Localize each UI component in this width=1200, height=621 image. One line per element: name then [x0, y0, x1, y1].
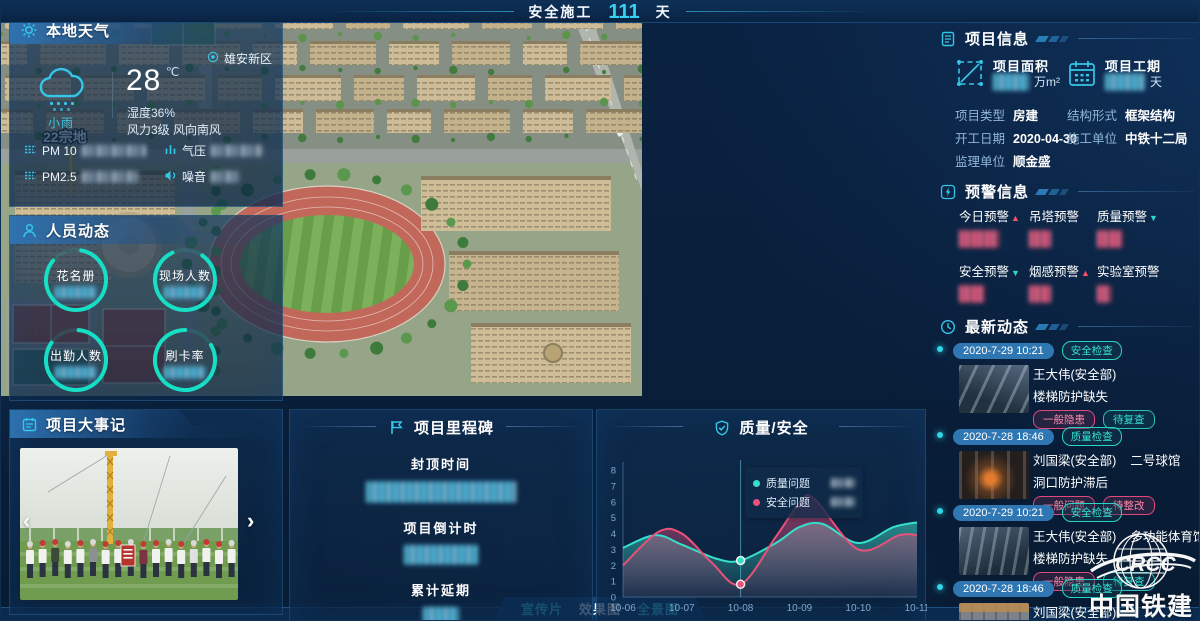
legend-dot — [753, 499, 760, 506]
news-person: 刘国梁(安全部) — [1033, 454, 1116, 468]
weather-metric: 气压 — [164, 142, 274, 159]
metric-value-blurred — [82, 145, 146, 157]
warning-value-blurred — [959, 230, 999, 248]
milestone-item: 累计延期 — [290, 580, 592, 621]
field-value: 房建 — [1013, 109, 1038, 123]
metric-label: PM 10 — [42, 144, 77, 158]
svg-text:10-06: 10-06 — [610, 603, 636, 614]
circle-value-blurred — [55, 286, 97, 299]
project-info-header: 项目信息 — [939, 28, 1195, 49]
sun-icon — [20, 21, 38, 39]
person-icon — [20, 221, 38, 239]
timeline-dot — [937, 508, 943, 514]
field-label: 开工日期 — [955, 132, 1005, 146]
news-photo — [959, 451, 1029, 499]
timeline-dot — [937, 584, 943, 590]
events-title: 项目大事记 — [46, 414, 126, 435]
news-issue-desc: 洞口防护滞后 — [1033, 472, 1200, 491]
rain-cloud-icon — [34, 66, 92, 117]
dashboard: 安全施工 111 天 本地天气 雄安新区 小雨 28 ℃ — [0, 0, 1200, 621]
alert-bolt-icon — [939, 183, 957, 201]
personnel-stat-circle: 出勤人数 — [43, 327, 109, 393]
metric-label: 噪音 — [182, 168, 206, 185]
legend-row: 质量问题 — [753, 475, 855, 491]
personnel-header: 人员动态 — [10, 216, 282, 244]
temperature-unit: ℃ — [166, 65, 179, 79]
warning-item: 质量预警▼ — [1097, 206, 1177, 248]
stat-unit: 万m² — [1034, 75, 1060, 89]
milestone-item-value-blurred — [423, 607, 459, 621]
deco-chips — [1037, 36, 1070, 42]
circle-value-blurred — [55, 366, 97, 379]
pm-icon — [24, 144, 37, 158]
svg-text:5: 5 — [611, 513, 616, 524]
area-icon — [955, 58, 985, 93]
clock-icon — [939, 318, 957, 336]
svg-text:3: 3 — [611, 545, 616, 556]
weather-metric: PM2.5 — [24, 168, 164, 185]
events-header: 项目大事记 — [10, 410, 282, 438]
project-field: 施工单位中铁十二局 — [1067, 128, 1188, 147]
svg-text:10-09: 10-09 — [787, 603, 813, 614]
svg-text:0: 0 — [611, 593, 616, 604]
field-value: 中铁十二局 — [1125, 132, 1188, 146]
crcc-name: 中国铁建 — [1081, 587, 1200, 621]
circle-value-blurred — [164, 286, 206, 299]
location-icon — [207, 51, 219, 66]
carousel-prev-button[interactable]: ‹ — [23, 510, 30, 532]
news-date-badge: 2020-7-29 10:21 — [953, 505, 1054, 521]
legend-label: 安全问题 — [766, 494, 810, 510]
personnel-stat-circle: 刷卡率 — [152, 327, 218, 393]
legend-row: 安全问题 — [753, 494, 855, 510]
timeline-dot — [937, 346, 943, 352]
warning-item: 安全预警▼ — [959, 261, 1039, 303]
field-label: 施工单位 — [1067, 132, 1117, 146]
milestone-item-label: 累计延期 — [290, 580, 592, 599]
quality-header: 质量/安全 — [597, 417, 925, 438]
temperature-value: 28 — [126, 64, 161, 97]
svg-text:6: 6 — [611, 497, 616, 508]
event-photo[interactable] — [20, 448, 238, 600]
project-field: 项目类型房建 — [955, 105, 1038, 124]
field-label: 项目类型 — [955, 109, 1005, 123]
safe-days-unit: 天 — [656, 2, 672, 22]
milestone-item-value-blurred — [404, 545, 478, 565]
svg-text:8: 8 — [611, 466, 616, 477]
metric-value-blurred — [211, 171, 241, 183]
legend-dot — [753, 480, 760, 487]
pm-icon — [24, 170, 37, 184]
crcc-logo: CRCC 中国铁建 — [1081, 531, 1200, 621]
warning-label: 安全预警▼ — [959, 261, 1039, 280]
news-category-badge: 质量检查 — [1062, 427, 1122, 446]
news-category-badge: 安全检查 — [1062, 341, 1122, 360]
deco-line — [1078, 38, 1195, 39]
weather-metrics: PM 10气压PM2.5噪音 — [24, 142, 274, 185]
weather-metric: 噪音 — [164, 168, 274, 185]
warning-value-blurred — [1097, 230, 1123, 248]
weather-metric: PM 10 — [24, 142, 164, 159]
field-label: 监理单位 — [955, 155, 1005, 169]
warnings-header: 预警信息 — [939, 181, 1195, 202]
news-person: 王大伟(安全部) — [1033, 368, 1116, 382]
warning-label: 今日预警▲ — [959, 206, 1039, 225]
metric-value-blurred — [82, 171, 138, 183]
svg-text:7: 7 — [611, 481, 616, 492]
circle-label: 出勤人数 — [43, 347, 109, 364]
news-item[interactable]: 2020-7-29 10:21安全检查王大伟(安全部)楼梯防护缺失一般隐患待复查 — [929, 341, 1200, 423]
news-photo — [959, 527, 1029, 575]
circle-label: 刷卡率 — [152, 347, 218, 364]
news-location: 二号球馆 — [1130, 454, 1180, 468]
circle-label: 现场人数 — [152, 267, 218, 284]
circle-value-blurred — [164, 366, 206, 379]
svg-text:10-08: 10-08 — [728, 603, 754, 614]
noise-icon — [164, 170, 177, 184]
svg-text:1: 1 — [611, 577, 616, 588]
personnel-stat-circle: 现场人数 — [152, 247, 218, 313]
metric-label: 气压 — [182, 142, 206, 159]
milestone-item-label: 封顶时间 — [290, 454, 592, 473]
warnings-title: 预警信息 — [965, 181, 1029, 202]
news-date-badge: 2020-7-28 18:46 — [953, 581, 1054, 597]
milestone-item: 项目倒计时 — [290, 518, 592, 565]
deco-line — [1078, 326, 1195, 327]
deco-chips — [1037, 189, 1070, 195]
events-panel: 项目大事记 ‹ › — [9, 409, 283, 615]
weather-condition: 小雨 — [48, 114, 74, 131]
quality-safety-panel: 质量/安全 01234567810-0610-0710-0810-0910-10… — [596, 409, 926, 621]
top-header: 安全施工 111 天 — [1, 1, 1199, 23]
trend-up-icon: ▲ — [1081, 268, 1090, 278]
header-deco-line-right — [686, 11, 876, 12]
circle-label: 花名册 — [43, 267, 109, 284]
milestone-panel: 项目里程碑 封顶时间项目倒计时累计延期 — [289, 409, 593, 621]
milestone-item: 封顶时间 — [290, 454, 592, 503]
stat-unit: 天 — [1150, 75, 1162, 89]
personnel-title: 人员动态 — [46, 220, 110, 241]
project-field: 监理单位顺金盛 — [955, 151, 1051, 170]
calendar-icon — [1067, 58, 1097, 93]
svg-text:10-11: 10-11 — [905, 603, 927, 614]
wind: 风力3级 风向南风 — [127, 121, 221, 138]
deco-chips — [1037, 324, 1070, 330]
news-issue-desc: 楼梯防护缺失 — [1033, 386, 1200, 405]
header-deco-line-left — [324, 11, 514, 12]
location-label: 雄安新区 — [224, 50, 272, 67]
metric-value-blurred — [211, 145, 263, 157]
news-photo — [959, 603, 1029, 621]
warning-label: 质量预警▼ — [1097, 206, 1177, 225]
trend-up-icon: ▲ — [1011, 213, 1020, 223]
safe-days-count: 111 — [608, 2, 639, 22]
right-column: 项目信息 项目面积万m²项目工期天 项目类型房建结构形式框架结构开工日期2020… — [929, 1, 1200, 621]
timeline-dot — [937, 432, 943, 438]
crcc-acronym: CRCC — [1115, 553, 1176, 576]
warning-value-blurred — [1097, 285, 1111, 303]
trend-down-icon: ▼ — [1011, 268, 1020, 278]
news-date-badge: 2020-7-29 10:21 — [953, 343, 1054, 359]
weather-panel: 本地天气 雄安新区 小雨 28 ℃ 湿度36% 风力3级 风向南风 PM 10气… — [9, 15, 283, 207]
news-category-badge: 安全检查 — [1062, 503, 1122, 522]
safe-days-prefix: 安全施工 — [528, 2, 592, 22]
chart-tooltip-legend: 质量问题安全问题 — [745, 467, 863, 518]
stat-value-blurred — [1105, 73, 1145, 91]
warning-value-blurred — [1029, 285, 1051, 303]
location-badge[interactable]: 雄安新区 — [207, 50, 272, 67]
legend-value-blurred — [831, 478, 855, 488]
svg-text:10-10: 10-10 — [845, 603, 871, 614]
news-item[interactable]: 2020-7-28 18:46质量检查刘国梁(安全部)二号球馆洞口防护滞后一般问… — [929, 427, 1200, 509]
flag-icon — [388, 419, 406, 437]
warning-value-blurred — [959, 285, 985, 303]
carousel-next-button[interactable]: › — [247, 510, 254, 532]
news-photo — [959, 365, 1029, 413]
warning-value-blurred — [1029, 230, 1051, 248]
field-label: 结构形式 — [1067, 109, 1117, 123]
svg-text:4: 4 — [611, 529, 616, 540]
project-info-title: 项目信息 — [965, 28, 1029, 49]
milestone-title: 项目里程碑 — [414, 417, 494, 438]
personnel-panel: 人员动态 花名册现场人数出勤人数刷卡率 — [9, 215, 283, 401]
calendar-note-icon — [20, 415, 38, 433]
humidity: 湿度36% — [127, 104, 175, 121]
weather-divider — [112, 72, 113, 118]
milestone-items: 封顶时间项目倒计时累计延期 — [290, 454, 592, 621]
warning-item: 实验室预警 — [1097, 261, 1177, 303]
pressure-icon — [164, 144, 177, 158]
shield-check-icon — [713, 419, 731, 437]
metric-label: PM2.5 — [42, 170, 77, 184]
milestone-item-label: 项目倒计时 — [290, 518, 592, 537]
deco-line — [1078, 191, 1195, 192]
legend-label: 质量问题 — [766, 475, 810, 491]
project-field: 结构形式框架结构 — [1067, 105, 1175, 124]
svg-text:10-07: 10-07 — [669, 603, 695, 614]
milestone-item-value-blurred — [366, 481, 516, 503]
project-field: 开工日期2020-04-30 — [955, 128, 1077, 147]
quality-title: 质量/安全 — [739, 417, 808, 438]
warning-label: 实验室预警 — [1097, 261, 1177, 280]
personnel-stat-circle: 花名册 — [43, 247, 109, 313]
stat-value-blurred — [993, 73, 1029, 91]
news-date-badge: 2020-7-28 18:46 — [953, 429, 1054, 445]
svg-text:2: 2 — [611, 561, 616, 572]
milestone-header: 项目里程碑 — [290, 417, 592, 438]
legend-value-blurred — [831, 497, 855, 507]
news-header: 最新动态 — [939, 316, 1195, 337]
trend-down-icon: ▼ — [1149, 213, 1158, 223]
warning-item: 今日预警▲ — [959, 206, 1039, 248]
field-value: 框架结构 — [1125, 109, 1175, 123]
news-title: 最新动态 — [965, 316, 1029, 337]
temperature: 28 ℃ — [126, 64, 179, 98]
document-icon — [939, 30, 957, 48]
field-value: 顺金盛 — [1013, 155, 1051, 169]
